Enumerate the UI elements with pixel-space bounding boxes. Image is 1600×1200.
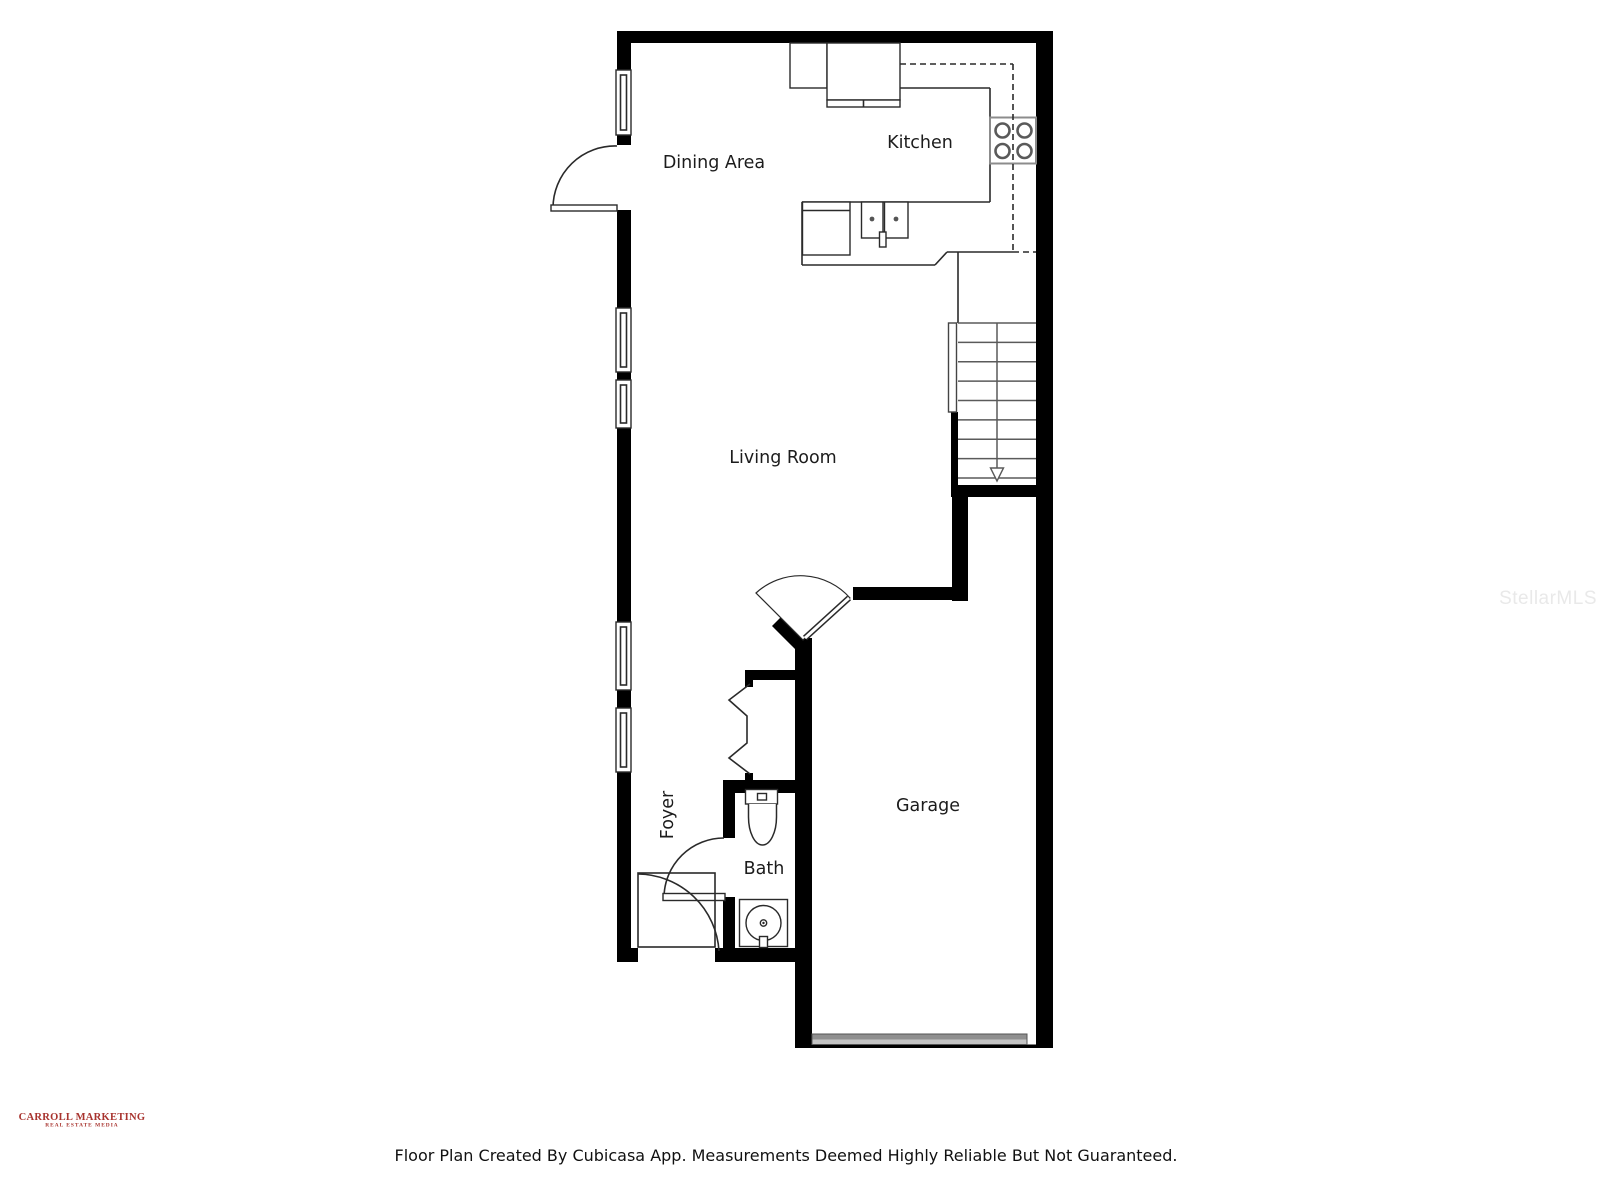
window [616,308,631,372]
kitchen-counter [790,43,1036,323]
window [616,708,631,772]
room-label-bath: Bath [744,859,785,879]
top-wall [617,31,1053,43]
room-label-dining-area: Dining Area [663,153,765,173]
logo-line-2: REAL ESTATE MEDIA [45,1123,118,1129]
dining-door [551,146,617,211]
room-label-garage: Garage [896,796,960,816]
caption: Floor Plan Created By Cubicasa App. Meas… [395,1146,1178,1165]
window [616,380,631,428]
kitchen-sink-icon [862,202,909,247]
stair-direction-arrow [991,468,1004,481]
window [616,70,631,135]
closet-bifold-icon [729,684,750,774]
windows [616,70,631,772]
door-leaf [551,205,617,211]
room-label-foyer: Foyer [658,790,678,839]
garage-door [812,1034,1027,1045]
upper-cabinet [790,43,827,88]
floor-plan: Dining Area Kitchen Living Room Foyer Ba… [0,0,1600,1200]
stair-rail [949,323,957,412]
toilet-icon [746,790,778,846]
garage-entry-door [756,576,850,643]
room-label-living-room: Living Room [729,448,836,468]
room-label-kitchen: Kitchen [887,133,953,153]
window [616,622,631,690]
door-swing-arc [553,146,617,208]
faucet [760,937,768,948]
door-swing-arc [638,874,719,951]
carroll-marketing-logo: CARROLL MARKETING REAL ESTATE MEDIA [19,1112,146,1129]
faucet [880,232,887,247]
stellar-mls-watermark: StellarMLS [1499,588,1597,609]
garage-left-wall [795,638,812,1047]
right-wall [1036,31,1053,1048]
logo-line-1: CARROLL MARKETING [19,1112,146,1123]
front-door [638,873,719,951]
stairs [949,323,1037,481]
floor-plan-page: Dining Area Kitchen Living Room Foyer Ba… [0,0,1600,1200]
upper-cabinet [827,43,900,100]
kitchen-cabinet-square [803,202,851,255]
bath-sink-icon [740,900,788,948]
